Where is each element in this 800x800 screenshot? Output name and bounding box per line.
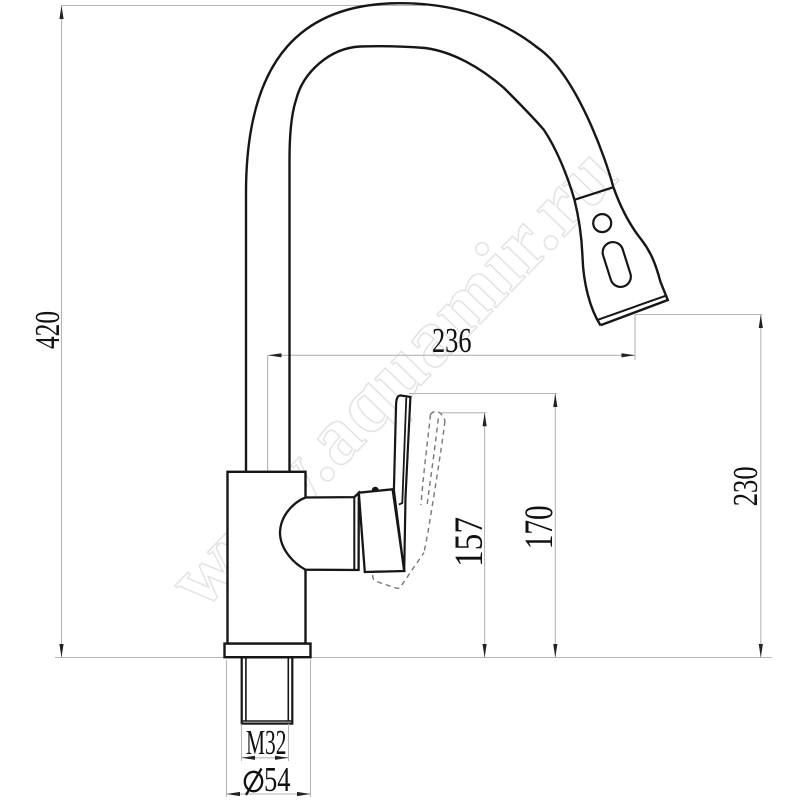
svg-text:420: 420: [28, 311, 67, 349]
svg-text:54: 54: [264, 760, 291, 799]
svg-text:170: 170: [516, 505, 561, 549]
svg-text:236: 236: [432, 321, 472, 360]
svg-text:157: 157: [446, 517, 491, 567]
svg-text:M32: M32: [246, 723, 287, 762]
svg-text:230: 230: [726, 466, 765, 506]
